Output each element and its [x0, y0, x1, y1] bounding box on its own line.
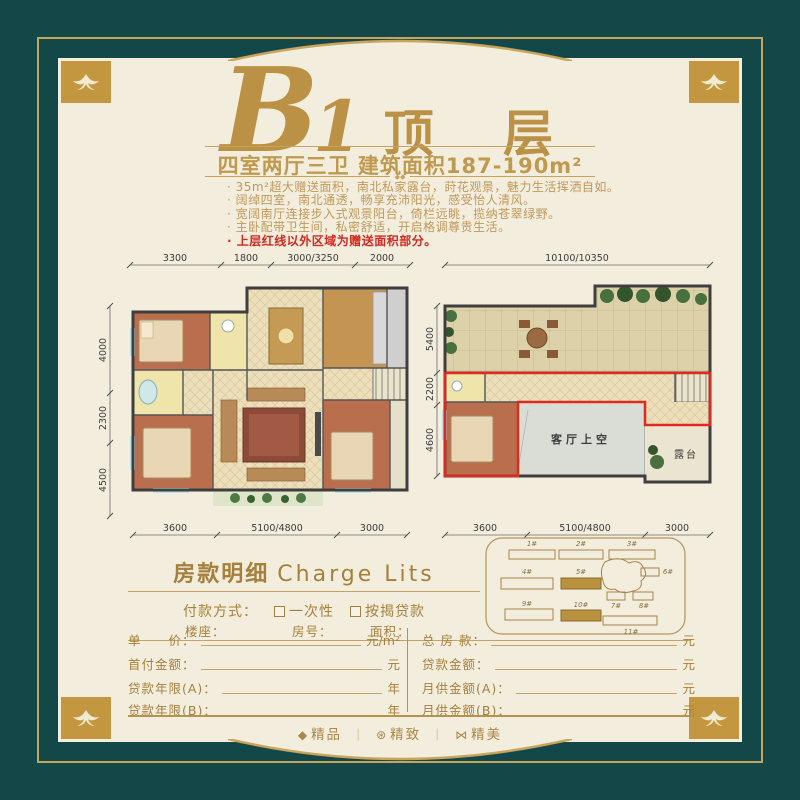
blank-line[interactable] — [201, 644, 362, 646]
dim-label: 4000 — [98, 338, 109, 362]
terrace-label: 露台 — [674, 448, 698, 461]
svg-text:9#: 9# — [522, 600, 532, 608]
hallway — [323, 368, 373, 400]
side-terrace — [390, 400, 407, 490]
diamond-icon: ◆ — [298, 728, 309, 742]
dim-label: 2300 — [98, 406, 109, 430]
svg-text:3#: 3# — [627, 540, 637, 548]
site-feature — [601, 559, 645, 593]
dim-label: 4500 — [98, 468, 109, 492]
dim-label: 3000 — [360, 523, 384, 534]
payment-heading-en: Charge Lits — [277, 562, 434, 587]
building — [641, 568, 659, 576]
svg-text:10#: 10# — [574, 601, 589, 609]
building — [559, 550, 603, 559]
right-floorplan: 10100/10350 5400 2200 4600 3600 5100/480… — [425, 253, 713, 538]
bathroom — [445, 373, 485, 402]
building — [501, 578, 553, 589]
dim-label: 2000 — [370, 253, 394, 264]
payment-heading: 房款明细Charge Lits — [128, 556, 480, 588]
blank-line[interactable] — [491, 644, 678, 646]
svg-text:7#: 7# — [611, 602, 621, 610]
landing — [645, 402, 710, 425]
building-highlighted — [561, 578, 601, 589]
building-highlighted — [561, 610, 601, 621]
field-down-payment: 首付金额：元 — [128, 654, 400, 673]
method-option-mortgage: 按揭贷款 — [350, 601, 425, 621]
heading-rule — [128, 591, 480, 592]
blank-line[interactable] — [222, 692, 383, 694]
bowtie-icon: ⋈ — [455, 728, 469, 742]
dim-label: 3000/3250 — [287, 253, 339, 264]
dim-label: 1800 — [234, 253, 258, 264]
dim-label: 2200 — [425, 377, 436, 401]
payment-heading-cn: 房款明细 — [173, 562, 269, 587]
svg-text:6#: 6# — [663, 568, 673, 576]
building — [603, 616, 657, 625]
payment-method-label: 付款方式： — [183, 601, 258, 621]
field-total-price: 总 房 款：元 — [422, 630, 695, 649]
title-letter: B — [221, 66, 319, 156]
site-plan: 1# 2# 3# 4# 5# 6# 7# 8# 9# 10# 11# — [483, 530, 688, 642]
feature-item: · 阔绰四室，南北通透，畅享充沛阳光，感受怡人清风。 — [227, 194, 599, 207]
subtitle-rule-bottom: ◆◆ — [205, 176, 595, 177]
dim-label: 3600 — [163, 523, 187, 534]
method-option-once: 一次性 — [274, 601, 334, 621]
building — [509, 550, 555, 559]
building — [633, 592, 653, 600]
stairs — [373, 368, 407, 400]
feature-list: · 35m²超大赠送面积，南北私家露台，莳花观景，魅力生活挥洒自如。 · 阔绰四… — [227, 181, 599, 248]
blank-line[interactable] — [201, 668, 383, 670]
dim-label: 5100/4800 — [251, 523, 303, 534]
medallion-icon: ⊛ — [376, 728, 388, 742]
hallway — [183, 370, 213, 415]
footer-slogans: ◆精品｜⊛精致｜⋈精美 — [0, 723, 800, 743]
svg-text:4#: 4# — [522, 568, 532, 576]
subtitle-rule-top — [205, 146, 595, 147]
building — [609, 550, 655, 559]
shaft — [387, 288, 407, 368]
field-unit-price: 单 价：元/m² — [128, 630, 400, 649]
svg-text:2#: 2# — [576, 540, 586, 548]
dim-label: 10100/10350 — [545, 253, 609, 264]
building — [607, 592, 625, 600]
blank-line[interactable] — [516, 692, 678, 694]
dim-label: 3300 — [163, 253, 187, 264]
checkbox-mortgage[interactable] — [350, 606, 361, 617]
blank-line[interactable] — [495, 668, 678, 670]
checkbox-once[interactable] — [274, 606, 285, 617]
field-loan-amount: 贷款金额：元 — [422, 654, 695, 673]
payment-method-row: 付款方式： 一次性 按揭贷款 — [128, 601, 480, 621]
feature-item: · 主卧配带卫生间，私密舒适，开启格调尊贵生活。 — [227, 221, 599, 234]
roof-terrace — [445, 286, 710, 373]
living-void-label: 客厅上空 — [550, 432, 611, 446]
floorplans: 3300 1800 3000/3250 2000 4000 2300 4500 … — [85, 250, 725, 552]
stairs — [675, 373, 710, 402]
page-title: B1顶 层 — [0, 66, 800, 158]
dim-label: 4600 — [425, 428, 436, 452]
dim-label: 5400 — [425, 327, 436, 351]
feature-item-highlight: · 上层红线以外区域为赠送面积部分。 — [227, 235, 599, 248]
poster: B1顶 层 四室两厅三卫 建筑面积187-190m² ◆◆ · 35m²超大赠送… — [0, 0, 800, 800]
svg-text:8#: 8# — [639, 602, 649, 610]
column-divider — [407, 628, 408, 712]
corridor — [485, 373, 675, 402]
building — [505, 609, 553, 620]
svg-text:5#: 5# — [576, 568, 586, 576]
field-monthly-a: 月供金额(A)：元 — [422, 678, 695, 697]
svg-text:1#: 1# — [527, 540, 537, 548]
bottom-rule — [128, 715, 695, 717]
left-floorplan: 3300 1800 3000/3250 2000 4000 2300 4500 … — [98, 253, 413, 538]
field-loan-term-a: 贷款年限(A)：年 — [128, 678, 400, 697]
